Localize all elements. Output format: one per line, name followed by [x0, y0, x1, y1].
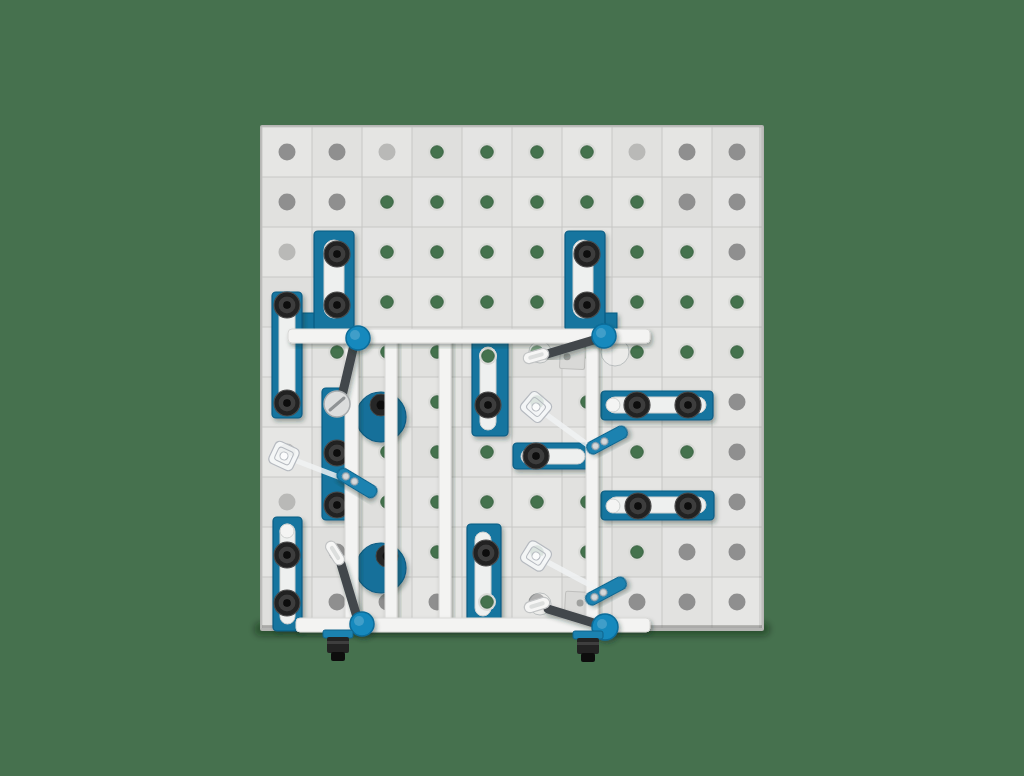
clamping-bolt-hole: [333, 250, 341, 258]
workpiece-rail-vertical: [385, 334, 397, 626]
table-hole-blind: [729, 444, 746, 461]
clamping-bolt-hole: [283, 551, 291, 559]
clamping-bolt-hole: [283, 399, 291, 407]
table-hole-through: [381, 196, 394, 209]
table-hole-through: [431, 196, 444, 209]
table-hole-through: [481, 146, 494, 159]
table-hole-through: [481, 596, 494, 609]
table-hole-blind: [679, 594, 696, 611]
table-hole-blind: [729, 244, 746, 261]
table-hole-through: [731, 346, 744, 359]
table-hole-through: [631, 546, 644, 559]
table-hole-through: [681, 346, 694, 359]
table-right-edge: [759, 127, 762, 628]
clamping-bolt-hole: [482, 549, 490, 557]
fitting-cap: [573, 631, 603, 639]
table-hole-blind: [629, 144, 646, 161]
table-hole-blind: [329, 594, 346, 611]
stop-center-lower: [467, 524, 501, 623]
table-hole-through: [431, 146, 444, 159]
table-hole-through: [631, 296, 644, 309]
table-hole-blind: [379, 144, 396, 161]
table-hole-blind: [329, 194, 346, 211]
clamping-bolt-hole: [333, 301, 341, 309]
table-hole-through: [681, 296, 694, 309]
table-hole-through: [331, 346, 344, 359]
clamp-knob-highlight: [350, 330, 360, 340]
table-hole-blind: [279, 194, 296, 211]
table-hole-through: [581, 196, 594, 209]
clamp-knob-highlight: [354, 616, 364, 626]
table-hole-through: [431, 246, 444, 259]
clamping-bolt-hole: [333, 449, 341, 457]
table-hole-through: [381, 296, 394, 309]
stop-edge-left-upper: [272, 292, 302, 418]
clamping-bolt-hole: [484, 401, 492, 409]
stop-slot-hole: [606, 499, 620, 513]
table-hole-through: [531, 246, 544, 259]
table-hole-through: [482, 350, 495, 363]
fitting-tip: [581, 653, 595, 662]
table-hole-through: [631, 346, 644, 359]
stop-horizontal-middle: [513, 443, 590, 469]
table-hole-blind: [729, 194, 746, 211]
stop-center-upper: [472, 339, 508, 436]
clamping-bolt-hole: [283, 301, 291, 309]
table-hole-blind: [629, 594, 646, 611]
clamping-bolt-hole: [283, 599, 291, 607]
clamping-bolt-hole: [684, 502, 692, 510]
fitting-ring: [577, 642, 599, 645]
clamping-bolt-hole: [333, 501, 341, 509]
table-hole-through: [481, 296, 494, 309]
stop-horizontal-right-lower: [601, 491, 714, 520]
round-rail-plate: [356, 543, 406, 593]
table-hole-through: [681, 246, 694, 259]
table-hole-through: [631, 446, 644, 459]
clamping-bolt-hole: [684, 401, 692, 409]
clamping-bolt-hole: [532, 452, 540, 460]
table-hole-through: [481, 496, 494, 509]
clamping-bolt-hole: [583, 301, 591, 309]
table-hole-blind: [679, 144, 696, 161]
table-hole-blind: [729, 544, 746, 561]
fitting-body: [327, 637, 349, 653]
table-hole-through: [481, 196, 494, 209]
table-hole-through: [381, 246, 394, 259]
disk-bolt-hole: [377, 401, 386, 410]
stop-horizontal-right-upper: [601, 391, 713, 420]
table-hole-through: [481, 246, 494, 259]
table-hole-blind: [279, 144, 296, 161]
scene-canvas: [0, 0, 1024, 776]
table-hole-through: [631, 196, 644, 209]
stop-edge-left-lower: [273, 517, 302, 631]
table-hole-through: [581, 146, 594, 159]
table-hole-through: [731, 296, 744, 309]
table-hole-blind: [279, 494, 296, 511]
stop-slot-hole: [606, 398, 620, 412]
fitting-tip: [331, 652, 345, 661]
table-hole-through: [531, 196, 544, 209]
table-hole-blind: [729, 394, 746, 411]
table-hole-blind: [729, 494, 746, 511]
table-hole-through: [481, 446, 494, 459]
fitting-cap: [323, 630, 353, 638]
table-hole-through: [531, 146, 544, 159]
welding-table-render: [0, 0, 1024, 776]
table-hole-blind: [729, 594, 746, 611]
stop-slot-hole: [280, 524, 294, 538]
clamp-knob-highlight: [596, 328, 606, 338]
clamp-knob-highlight: [597, 619, 607, 629]
stop-foot: [302, 313, 315, 331]
clamping-bolt-hole: [634, 502, 642, 510]
table-hole-blind: [679, 194, 696, 211]
table-hole-blind: [279, 244, 296, 261]
table-hole-blind: [329, 144, 346, 161]
table-hole-blind: [729, 144, 746, 161]
table-hole-through: [531, 496, 544, 509]
table-hole-blind: [679, 544, 696, 561]
fitting-ring: [327, 641, 349, 644]
workpiece-rail-vertical: [439, 334, 451, 626]
clamping-bolt-hole: [633, 401, 641, 409]
table-hole-through: [531, 296, 544, 309]
round-rail-plate: [356, 392, 406, 442]
table-hole-through: [631, 246, 644, 259]
table-hole-through: [431, 296, 444, 309]
fitting-body: [577, 638, 599, 654]
table-hole-through: [681, 446, 694, 459]
clamping-bolt-hole: [583, 250, 591, 258]
